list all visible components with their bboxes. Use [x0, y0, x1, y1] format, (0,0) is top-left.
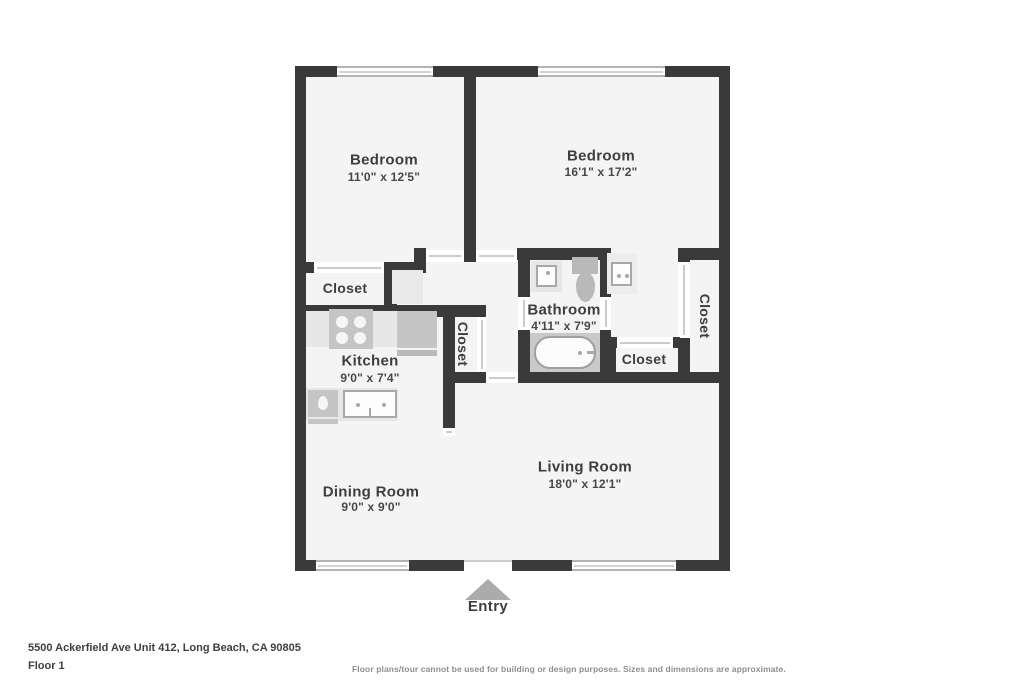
bathroom-dims: 4'11" x 7'9" — [531, 319, 597, 333]
faucet-drop-icon — [318, 396, 328, 410]
window-living — [572, 560, 676, 571]
living-room-label: Living Room — [538, 459, 632, 476]
wall-closet-bottom-left — [605, 337, 616, 383]
door-closet-top-left — [314, 262, 384, 273]
bedroom2-dims: 16'1" x 17'2" — [564, 165, 637, 179]
closet-top-left-label: Closet — [323, 280, 368, 296]
stove-burner-icon — [354, 332, 366, 344]
bedroom1-label: Bedroom — [350, 152, 418, 169]
sink-dot — [625, 274, 629, 278]
hall-cabinet — [392, 270, 423, 304]
dining-room-dims: 9'0" x 9'0" — [341, 500, 400, 514]
wall-bedroom1-bottom-a — [306, 262, 314, 273]
wall-lower-right — [518, 372, 730, 383]
vanity-sink-icon — [611, 262, 632, 286]
wall-closet-mid-bottom — [443, 372, 486, 383]
window-bedroom2 — [538, 66, 665, 77]
door-closet-bottom — [617, 337, 673, 348]
kitchen-dims: 9'0" x 7'4" — [340, 371, 399, 385]
stove-burner-icon — [354, 316, 366, 328]
stove-burner-icon — [336, 332, 348, 344]
bathroom-label: Bathroom — [527, 302, 600, 319]
door-bedroom2 — [476, 250, 517, 262]
entry-label: Entry — [468, 598, 508, 615]
door-hall-living — [486, 372, 518, 383]
window-dining — [316, 560, 409, 571]
bedroom1-dims: 11'0" x 12'5" — [348, 170, 420, 184]
living-room-dims: 18'0" x 12'1" — [548, 477, 621, 491]
closet-mid-label: Closet — [455, 322, 471, 367]
stove-burner-icon — [336, 316, 348, 328]
kitchen-label: Kitchen — [341, 353, 398, 370]
wall-outer-right — [719, 66, 730, 571]
tub-drain — [578, 351, 582, 355]
window-bedroom1 — [337, 66, 433, 77]
sink-divider — [369, 408, 371, 416]
stove-icon — [329, 309, 373, 349]
closet-bottom-label: Closet — [622, 351, 667, 367]
tub-faucet-icon — [587, 351, 594, 354]
kitchen-sink-icon — [343, 390, 397, 418]
floor-number: Floor 1 — [28, 660, 65, 672]
kitchen-counter-left — [306, 311, 331, 347]
kitchen-counter-mid — [372, 311, 397, 347]
sink-dot — [382, 403, 386, 407]
dishwasher-base — [308, 419, 338, 424]
dishwasher-icon — [308, 390, 338, 417]
entry-arrow-icon — [465, 579, 511, 600]
bathtub-icon — [534, 336, 596, 369]
refrigerator-base — [397, 350, 437, 356]
wall-kitchen-right — [443, 305, 455, 428]
closet-right-label: Closet — [697, 294, 713, 339]
bedroom2-label: Bedroom — [567, 148, 635, 165]
door-bathroom-right — [600, 297, 611, 330]
door-closet-mid — [477, 317, 486, 372]
property-address: 5500 Ackerfield Ave Unit 412, Long Beach… — [28, 642, 301, 654]
door-closet-right — [678, 262, 690, 338]
door-bedroom1 — [426, 250, 464, 262]
sink-dot — [356, 403, 360, 407]
disclaimer-text: Floor plans/tour cannot be used for buil… — [352, 664, 786, 674]
refrigerator-icon — [397, 311, 437, 348]
entry-door-opening — [464, 560, 512, 571]
wall-bedroom-divider — [464, 66, 476, 262]
bathroom-sink-icon — [536, 265, 557, 287]
opening-kitchen-passage — [443, 428, 455, 436]
sink-dot — [617, 274, 621, 278]
wall-outer-left — [295, 66, 306, 571]
sink-dot — [546, 271, 550, 275]
dining-room-label: Dining Room — [323, 484, 420, 501]
